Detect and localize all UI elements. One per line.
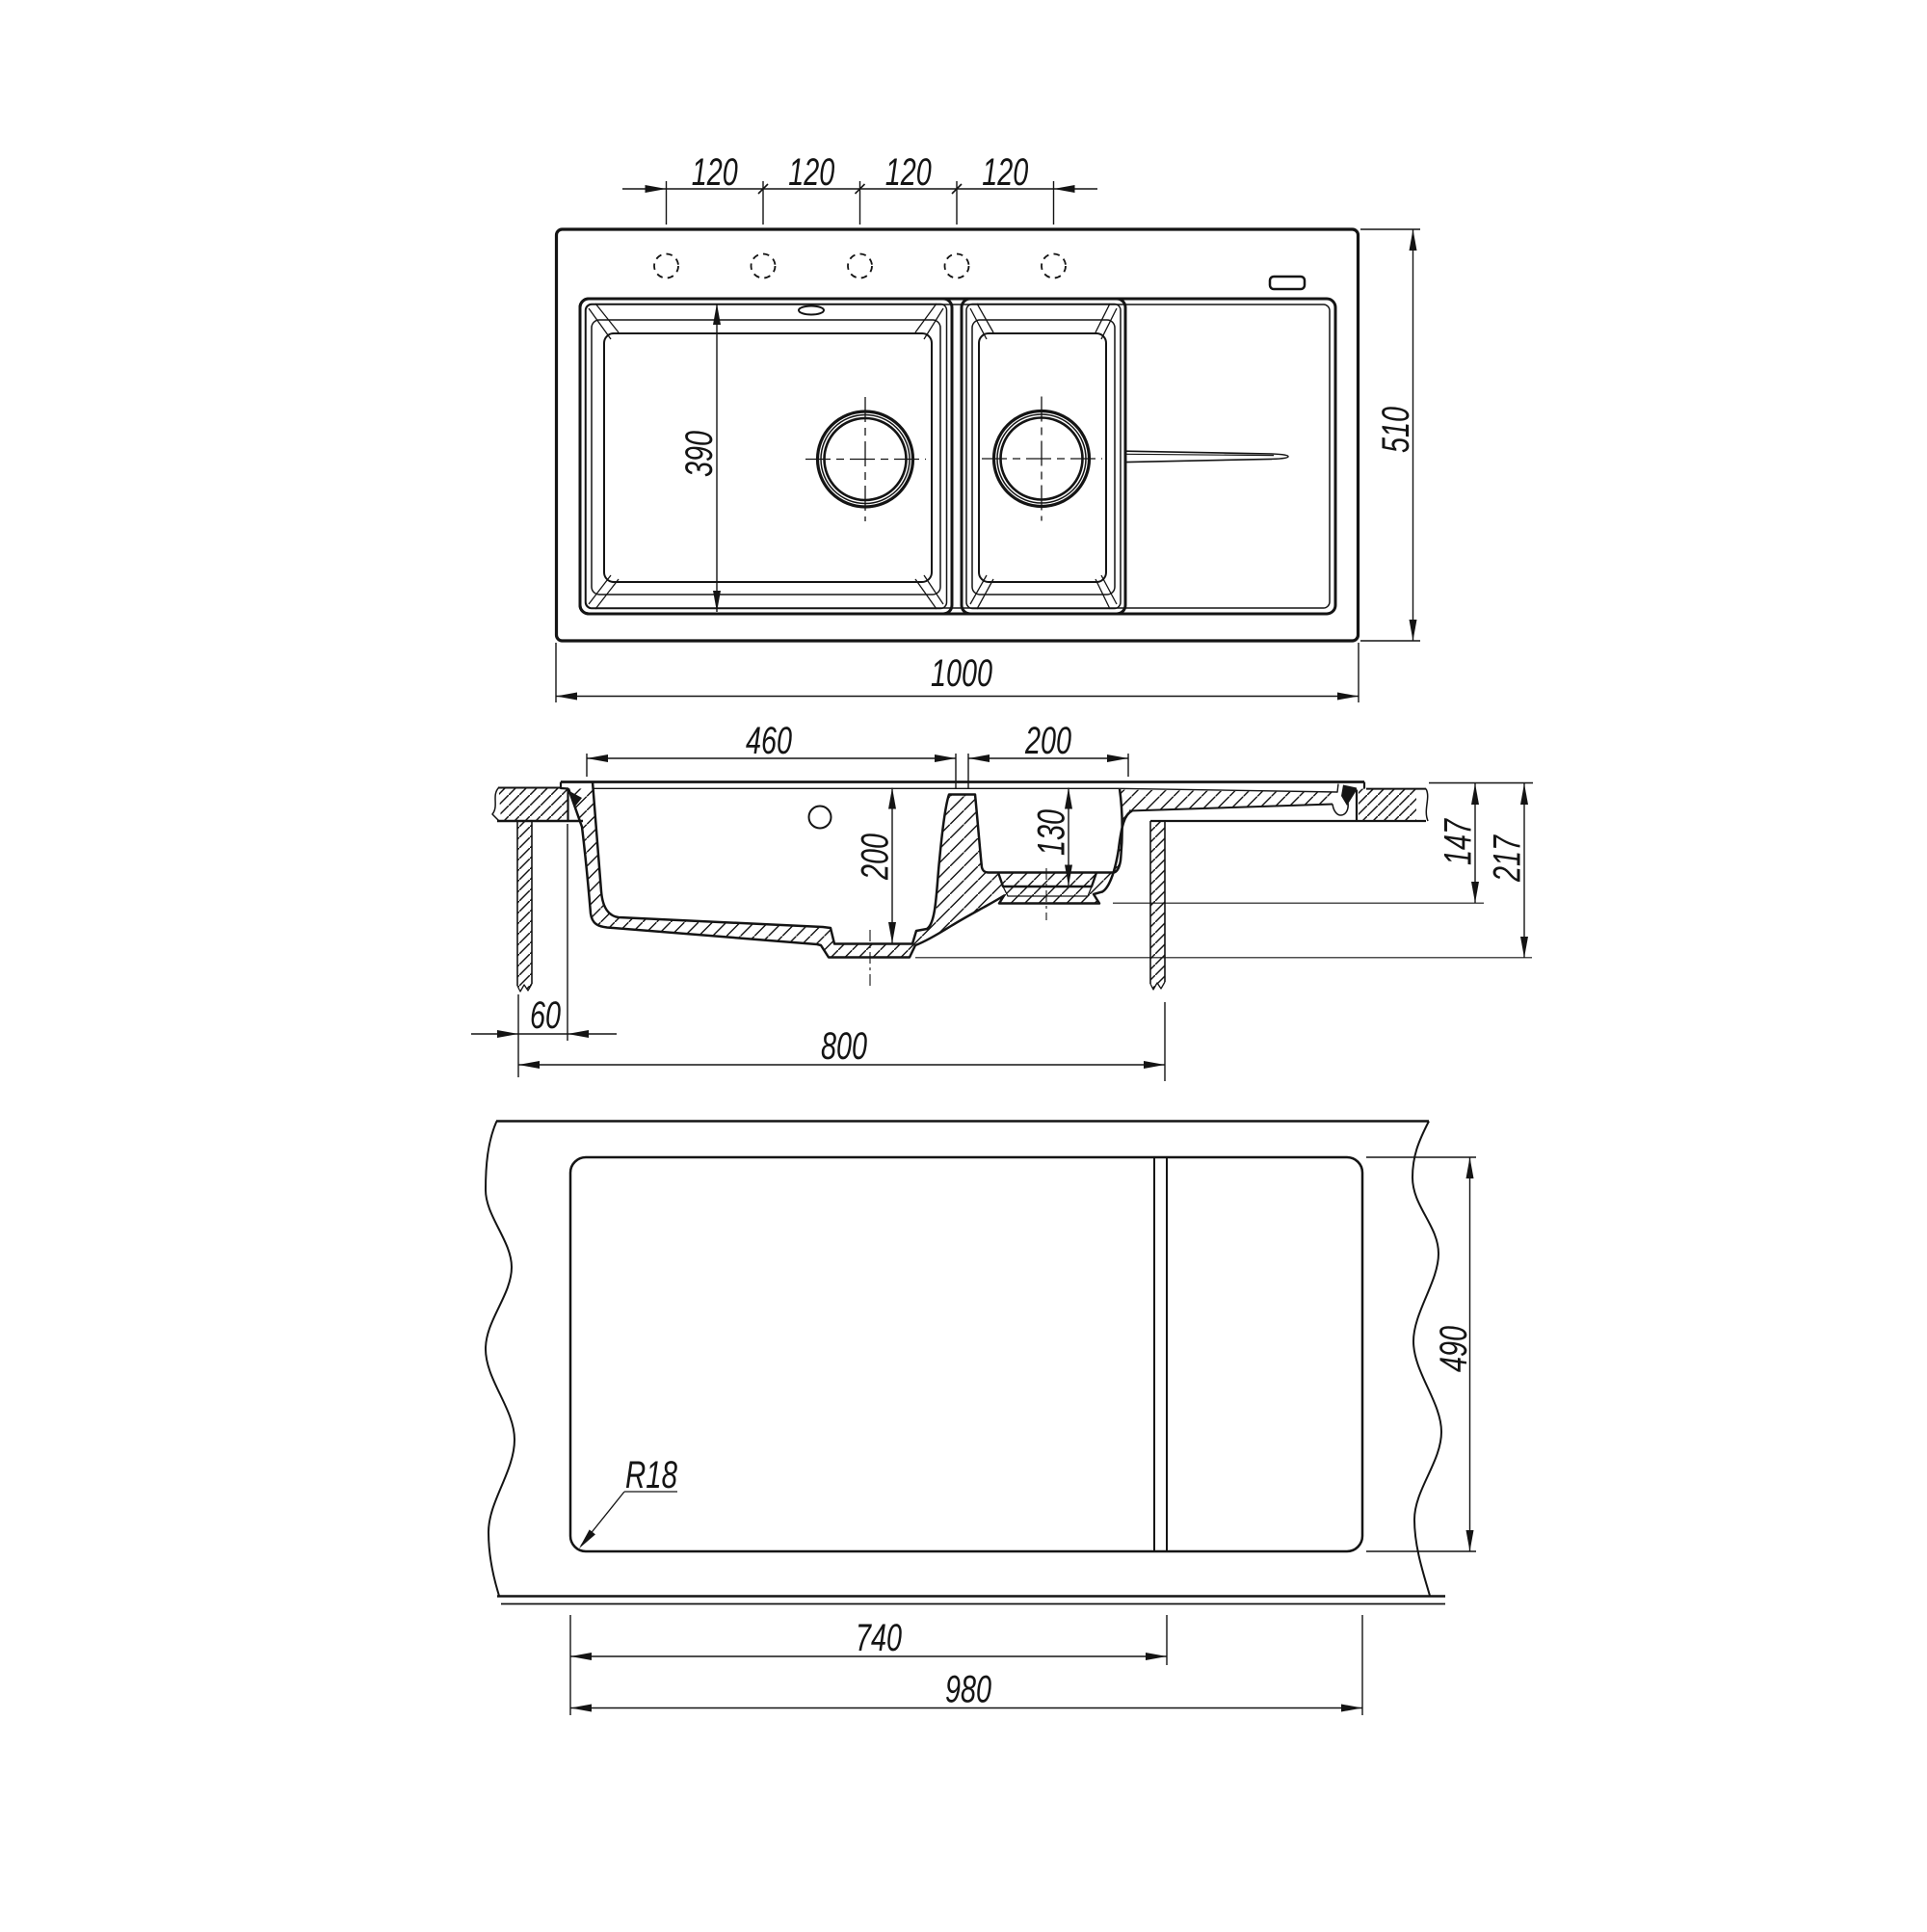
svg-text:490: 490 bbox=[1433, 1326, 1475, 1372]
svg-text:980: 980 bbox=[945, 1669, 991, 1711]
svg-text:200: 200 bbox=[855, 834, 897, 881]
svg-text:217: 217 bbox=[1487, 834, 1529, 883]
svg-text:120: 120 bbox=[788, 151, 834, 194]
svg-text:120: 120 bbox=[982, 151, 1028, 194]
svg-text:460: 460 bbox=[746, 720, 792, 762]
svg-text:740: 740 bbox=[856, 1617, 902, 1659]
svg-text:800: 800 bbox=[821, 1025, 867, 1068]
svg-text:120: 120 bbox=[692, 151, 738, 194]
svg-text:130: 130 bbox=[1031, 809, 1073, 856]
svg-text:510: 510 bbox=[1375, 407, 1417, 453]
svg-text:60: 60 bbox=[530, 994, 561, 1037]
svg-text:1000: 1000 bbox=[931, 652, 992, 695]
svg-text:R18: R18 bbox=[625, 1454, 678, 1496]
svg-text:120: 120 bbox=[885, 151, 932, 194]
svg-text:390: 390 bbox=[678, 431, 721, 477]
svg-text:147: 147 bbox=[1438, 818, 1480, 865]
svg-text:200: 200 bbox=[1024, 720, 1071, 762]
